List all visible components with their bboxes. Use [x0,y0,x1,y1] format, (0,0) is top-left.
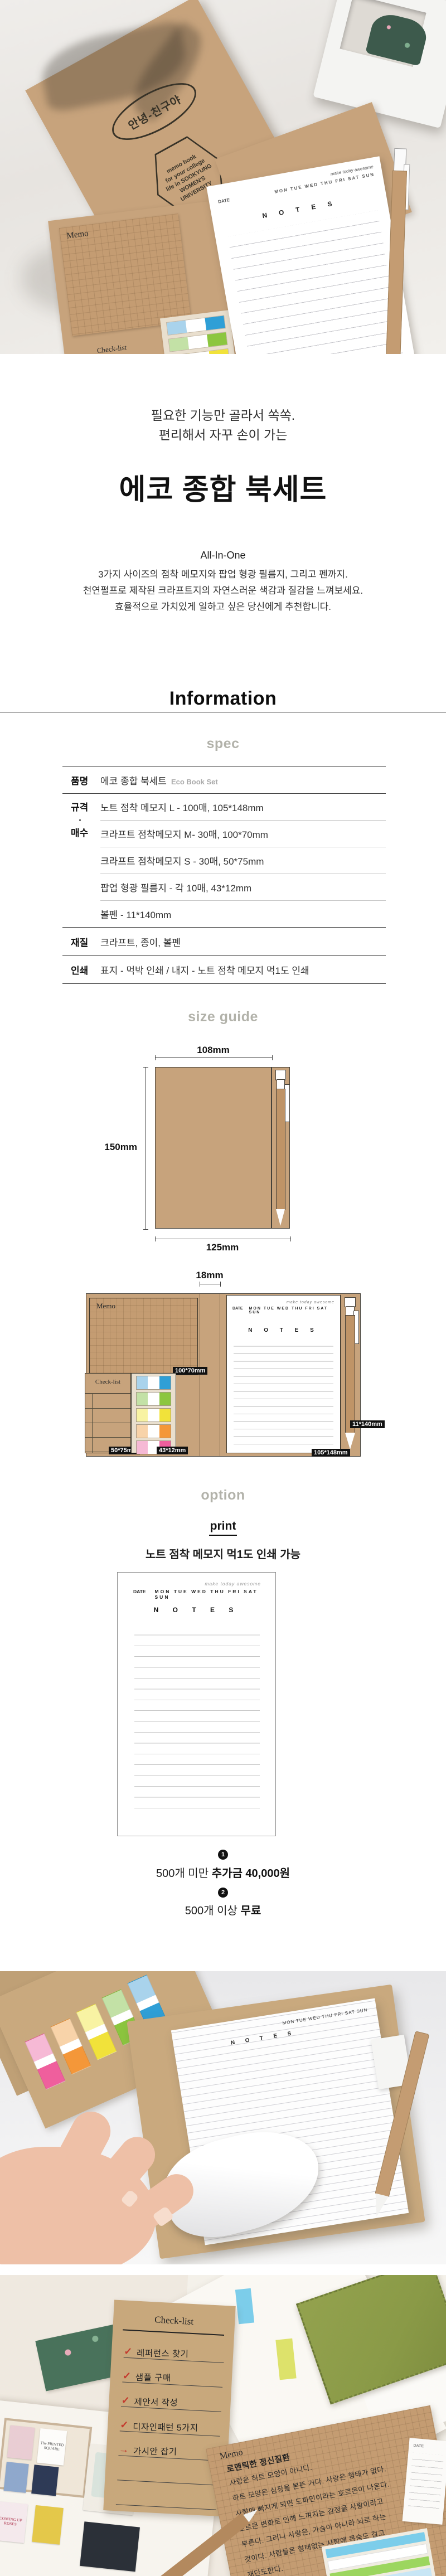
checklist-pad-title: Check-list [69,339,156,354]
information-heading: Information [0,688,446,710]
spec-heading: spec [0,736,446,752]
intro-line-1: 필요한 기능만 골라서 쏙쏙. [0,405,446,424]
check-mark: ✓ [120,2419,129,2431]
option-item-2: 500개 이상 무료 [0,1901,446,1918]
pattern-swatch-navy [31,2465,59,2496]
spec-value-print: 표지 - 먹박 인쇄 / 내지 - 노트 점착 메모지 먹1도 인쇄 [100,963,309,977]
print-sample-pad: make today awesome DATE MON TUE WED THU … [117,1572,276,1836]
diagram-memo-pad: Memo [89,1298,198,1375]
memo-pad-title: Memo [96,1302,115,1311]
notes-days: MON TUE WED THU FRI SAT SUN [155,1589,261,1600]
pattern-swatch-dark [80,2521,140,2572]
spec-size-row: 팝업 형광 필름지 - 각 10매, 43*12mm [100,874,386,901]
magazine-title-1: COMING UP ROSES [0,2515,26,2528]
pen-tip [276,1209,285,1226]
pen-body [276,1089,285,1210]
flags-size-tag: 43*12mm [157,1447,188,1454]
notes-lines [227,210,406,354]
dim-bottom-arrow [155,1236,291,1241]
spec-label-qty: 매수 [71,827,100,840]
spec-row-size-qty: 규격 · 매수 노트 점착 메모지 L - 100매, 105*148mm 크라… [62,794,386,928]
checklist-line [85,1408,130,1409]
spine-left-line [200,1294,200,1456]
spec-label-size: 규격 [71,801,100,814]
closed-book-diagram [155,1067,290,1229]
memo-pad-title: Memo [66,229,89,241]
all-in-one-line-1: 3가지 사이즈의 점착 메모지와 팝업 형광 필름지, 그리고 펜까지. [0,566,446,580]
checklist-item-text: 가시안 잡기 [133,2444,177,2457]
checklist-item-text: 레퍼런스 찾기 [137,2346,189,2360]
spec-size-row: 크라프트 점착메모지 M- 30매, 100*70mm [100,821,386,847]
pen-strip-line [341,1294,341,1456]
spec-label-size-qty: 규격 · 매수 [71,801,100,840]
print-subheading-wrap: print [0,1520,446,1536]
diagram-pen [274,1070,288,1227]
notes-title: N O T E S [118,1606,275,1614]
spec-table: 품명 에코 종합 북세트Eco Book Set 규격 · 매수 노트 점착 메… [62,766,386,984]
pen-size-tag: 11*140mm [350,1420,385,1428]
dim-spine-arrow [200,1282,221,1287]
open-book-diagram: Memo 100*70mm Check-list 50*75mm 43*12mm… [86,1293,361,1457]
flag-row-green [136,1392,171,1406]
notes-date-label: DATE [232,1307,243,1314]
spine-right-line [220,1294,220,1456]
notes-days: MON TUE WED THU FRI SAT SUN [274,172,375,195]
notes-tagline: make today awesome [205,1581,261,1587]
date-label: DATE [413,2444,424,2449]
pen-tip [345,1433,355,1449]
memo-size-tag: 100*70mm [173,1367,207,1375]
notes-title: N O T E S [227,1327,340,1333]
option-item-2-price: 무료 [240,1905,261,1917]
checklist-column-line [92,1393,93,1453]
print-note: 노트 점착 메모지 먹1도 인쇄 가능 [0,1545,446,1561]
dispenser-hole [340,0,426,67]
diagram-flags-block [131,1373,176,1453]
memo-title: Memo [219,2448,244,2462]
information-rule [0,712,446,712]
spec-row-print: 인쇄 표지 - 먹박 인쇄 / 내지 - 노트 점착 메모지 먹1도 인쇄 [62,956,386,984]
detail-photo-collage: The PRINTED SQUARE COMING UP ROSES Check… [0,2275,446,2576]
spec-row-material: 재질 크라프트, 종이, 볼펜 [62,928,386,956]
notes-title: N O T E S [230,2030,296,2046]
checklist-title: Check-list [113,2312,235,2330]
spec-size-row: 노트 점착 메모지 L - 100매, 105*148mm [100,794,386,821]
notes-lines [134,1624,260,1812]
spec-size-row: 볼펜 - 11*140mm [100,901,386,927]
notes-tagline: make today awesome [287,1301,334,1304]
intro-line-2: 편리해서 자꾸 손이 가는 [0,424,446,443]
magazine-title-2: The PRINTED SQUARE [38,2441,66,2452]
oval-stamp-text: 안녕-친구야 [125,90,184,133]
check-arrow: → [118,2443,129,2456]
sticky-flags-block [160,310,241,354]
option-badge-2: 2 [218,1888,228,1898]
spec-label-material: 재질 [62,935,100,949]
spec-name-text: 에코 종합 북세트 [100,776,167,787]
washi-tape-roll [365,11,430,66]
hero-photo: 안녕-친구야 memo book for your college life i… [0,0,446,354]
spec-row-name: 품명 에코 종합 북세트Eco Book Set [62,767,386,794]
option-badge-1: 1 [218,1850,228,1860]
checklist-item-text: 샘플 구매 [135,2371,171,2384]
checklist-pad-title: Check-list [85,1379,130,1385]
diagram-notes-pad: make today awesome DATE MON TUE WED THU … [226,1295,341,1453]
spec-value-name: 에코 종합 북세트Eco Book Set [100,773,218,787]
detail-photo-hand: MON TUE WED THU FRI SAT SUN N O T E S [0,1971,446,2264]
product-detail-page: 안녕-친구야 memo book for your college life i… [0,0,446,2576]
all-in-one-line-3: 효율적으로 가치있게 일하고 싶은 당신에게 추천합니다. [0,599,446,613]
option-item-2-text: 500개 이상 [185,1905,241,1917]
check-mark: ✓ [124,2346,133,2358]
small-white-pad: DATE [403,2438,446,2525]
dim-height-arrow [143,1067,148,1230]
diagram-checklist-pad: Check-list [85,1373,131,1453]
spec-size-row: 크라프트 점착메모지 S - 30매, 50*75mm [100,847,386,874]
notes-date-row: DATE MON TUE WED THU FRI SAT SUN [232,1307,334,1314]
pattern-swatch-yellow [32,2505,64,2545]
checklist-item-text: 디자인패턴 5가지 [133,2420,198,2434]
pattern-swatch-pink [7,2425,35,2459]
option-heading: option [0,1487,446,1503]
dim-height-label: 150mm [100,1142,137,1153]
pad-lines [408,2453,444,2511]
option-item-1-price: 추가금 40,000원 [212,1867,290,1880]
hand [0,2097,212,2264]
spec-name-sub: Eco Book Set [171,778,218,786]
flag-row-yellow [136,1408,171,1422]
notes-date-label: DATE [218,197,230,205]
size-guide-heading: size guide [0,1009,446,1025]
checklist-line [85,1423,130,1423]
flag-row-blue [136,1376,171,1390]
spec-label-name: 품명 [62,773,100,787]
spec-value-material: 크라프트, 종이, 볼펜 [100,935,181,949]
all-in-one-heading: All-In-One [0,550,446,561]
all-in-one-line-2: 천연펄프로 제작된 크라프트지의 자연스러운 색감과 질감을 느껴보세요. [0,583,446,596]
diagram-pen-strip [341,1294,360,1456]
option-item-1-text: 500개 미만 [156,1867,212,1880]
product-title: 에코 종합 북세트 [0,466,446,508]
dim-width-arrow [155,1055,273,1060]
notes-lines [234,1339,333,1445]
pattern-swatch-blue [3,2462,28,2493]
spec-label-print: 인쇄 [62,963,100,977]
print-subheading: print [209,1520,237,1536]
flag-row-orange [136,1424,171,1438]
cover-edge-line [271,1068,272,1228]
checklist-line [85,1437,130,1438]
dim-bottom-label: 125mm [155,1242,290,1253]
dim-width-label: 108mm [155,1045,272,1056]
tape-dispenser [313,0,446,128]
dim-spine-label: 18mm [190,1270,230,1281]
checklist-item-text: 제안서 작성 [134,2395,178,2408]
spec-label-dot: · [71,814,90,827]
pattern-swatch-white: The PRINTED SQUARE [37,2428,67,2466]
pattern-swatch-roses: COMING UP ROSES [0,2501,28,2543]
notes-days: MON TUE WED THU FRI SAT SUN [249,1307,334,1314]
checklist-empty-row [116,2481,217,2510]
notes-date-row: DATE MON TUE WED THU FRI SAT SUN [133,1589,261,1600]
check-mark: ✓ [121,2394,130,2407]
pen-body [345,1315,355,1433]
option-item-1: 500개 미만 추가금 40,000원 [0,1864,446,1880]
diagram-pen [342,1297,358,1453]
check-mark: ✓ [122,2370,131,2383]
notes-date-label: DATE [133,1589,146,1600]
